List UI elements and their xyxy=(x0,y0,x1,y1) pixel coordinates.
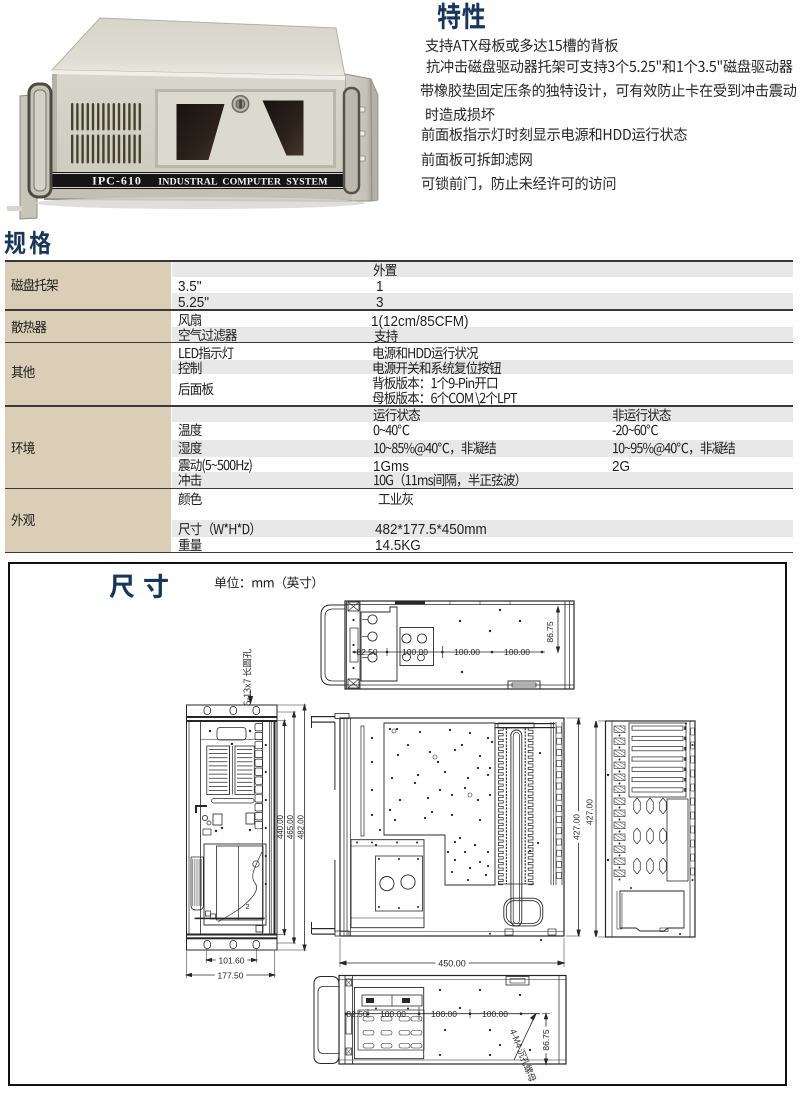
svg-text:14.5KG: 14.5KG xyxy=(375,537,421,554)
svg-text:450.00: 450.00 xyxy=(438,959,466,969)
svg-text:100.00: 100.00 xyxy=(402,647,428,657)
svg-text:2: 2 xyxy=(246,904,250,911)
svg-text:1: 1 xyxy=(376,278,384,295)
svg-text:3: 3 xyxy=(376,294,384,311)
svg-text:427.00: 427.00 xyxy=(585,799,595,825)
svg-text:1Gms: 1Gms xyxy=(373,458,409,475)
svg-text:100.00: 100.00 xyxy=(454,647,480,657)
svg-text:100.00: 100.00 xyxy=(482,1009,508,1019)
svg-text:100.00: 100.00 xyxy=(380,1009,406,1019)
svg-text:100.00: 100.00 xyxy=(504,647,530,657)
svg-text:101.60: 101.60 xyxy=(219,956,245,966)
svg-text:177.50: 177.50 xyxy=(218,971,244,981)
svg-text:IPC-610: IPC-610 xyxy=(92,174,142,188)
svg-text:3.5": 3.5" xyxy=(178,278,202,295)
svg-text:482.00: 482.00 xyxy=(296,814,305,839)
svg-text:INDUSTRAL COMPUTER SYSTEM: INDUSTRAL COMPUTER SYSTEM xyxy=(158,177,328,188)
svg-text:427.00: 427.00 xyxy=(572,814,582,840)
svg-text:82.50: 82.50 xyxy=(346,1009,368,1019)
svg-text:82.50: 82.50 xyxy=(356,647,378,657)
svg-text:5.25": 5.25" xyxy=(178,294,209,311)
svg-text:482*177.5*450mm: 482*177.5*450mm xyxy=(375,521,487,538)
svg-text:86.75: 86.75 xyxy=(545,621,555,643)
svg-text:440.00: 440.00 xyxy=(276,814,285,839)
svg-text:86.75: 86.75 xyxy=(541,1029,551,1051)
svg-text:1(12cm/85CFM): 1(12cm/85CFM) xyxy=(371,313,469,330)
svg-text:2G: 2G xyxy=(612,458,630,475)
svg-text:100.00: 100.00 xyxy=(431,1009,457,1019)
svg-text:465.00: 465.00 xyxy=(286,814,295,839)
